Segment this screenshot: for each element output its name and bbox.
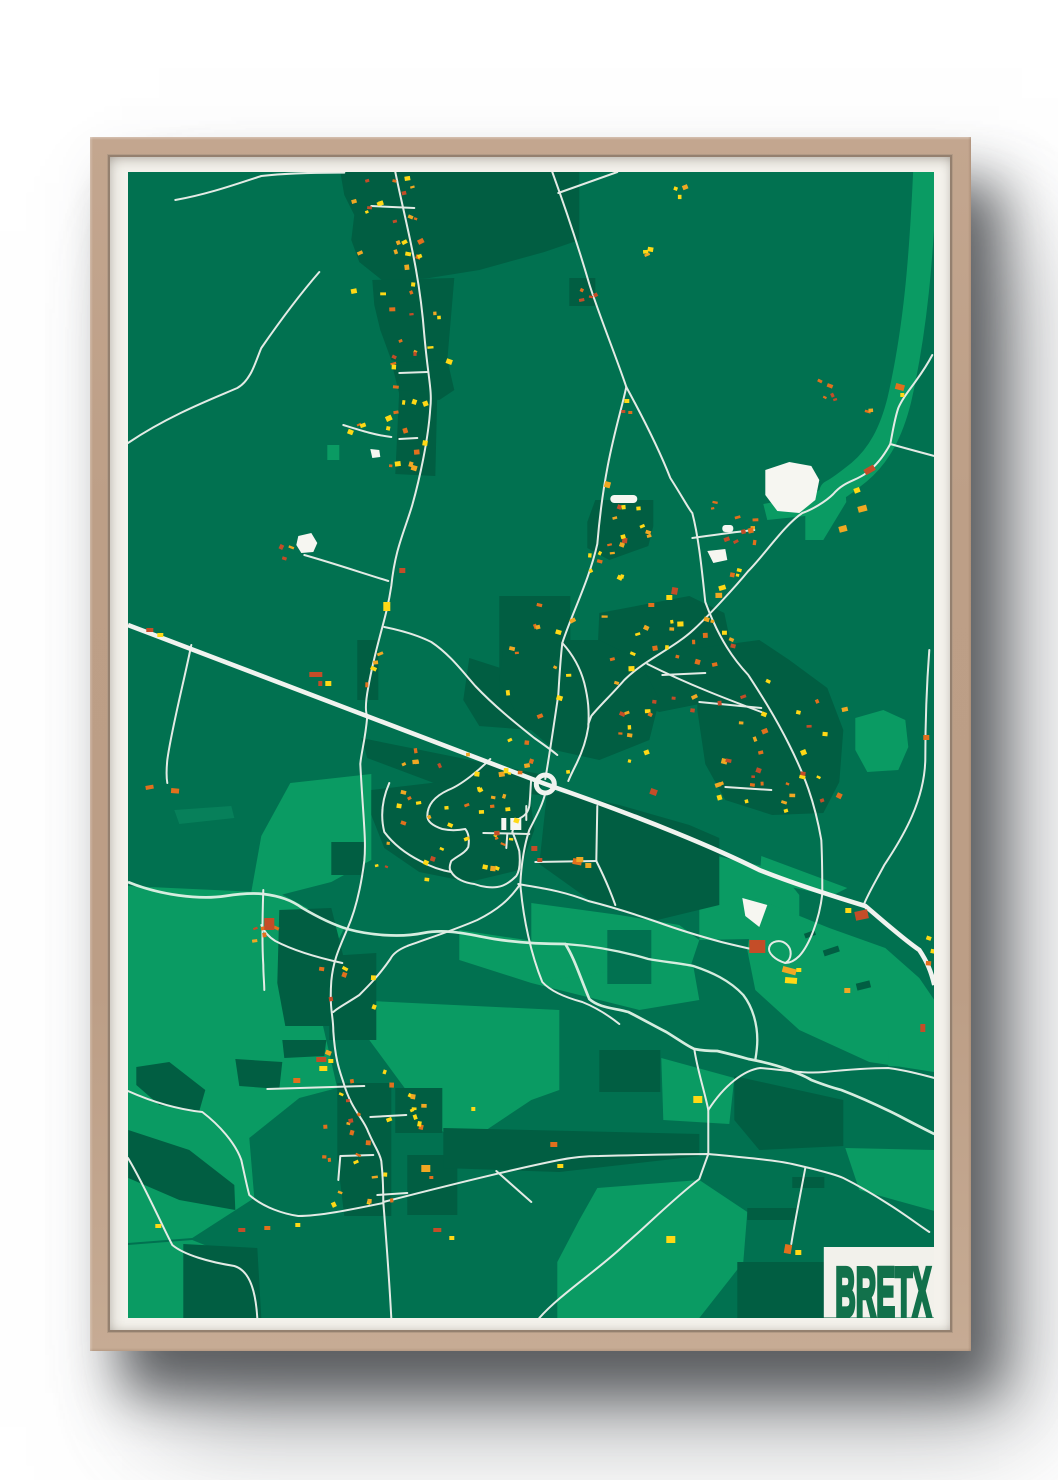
svg-text:BRETX: BRETX <box>835 1254 931 1318</box>
